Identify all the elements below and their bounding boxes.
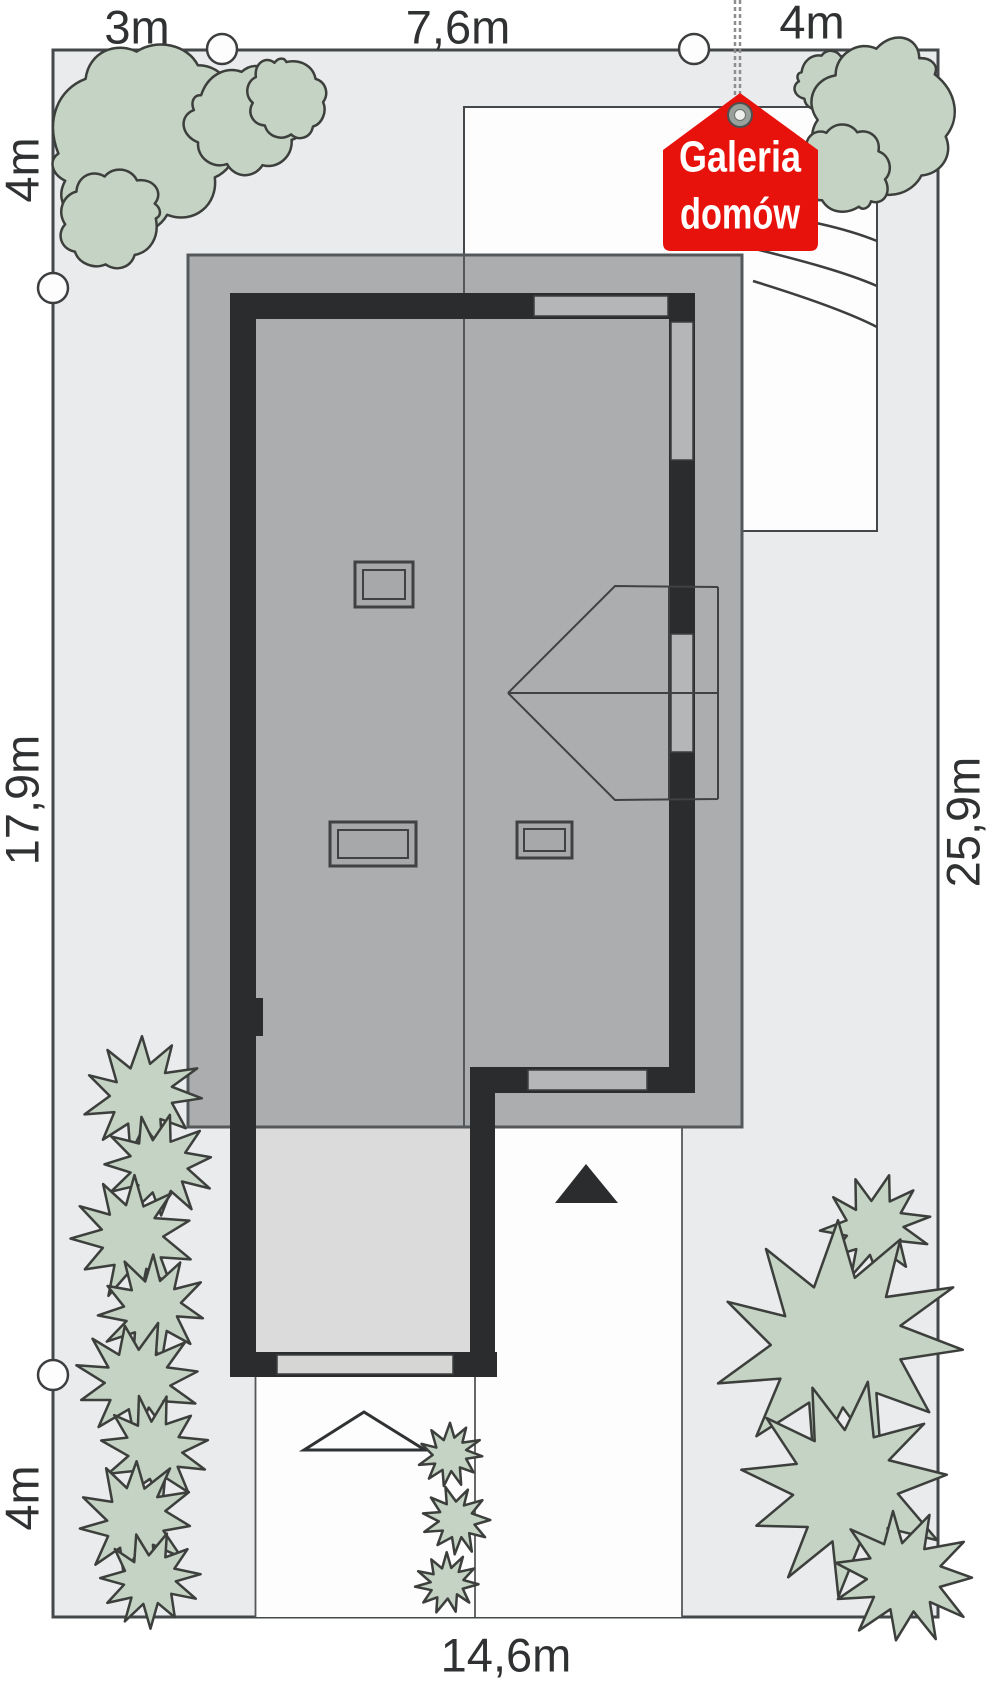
skylight (330, 822, 416, 866)
window-opening-east-upper (671, 322, 693, 460)
dimension-label-top-3: 4m (779, 0, 844, 49)
skylight (355, 562, 413, 607)
grommet-icon-hole (735, 110, 746, 121)
dimension-label-top-1: 3m (104, 1, 169, 54)
boundary-point (679, 34, 709, 64)
terrace (256, 1127, 470, 1352)
dimension-label-left-1: 4m (0, 137, 49, 202)
logo-line1: Galeria (679, 133, 801, 182)
dimension-label-left-2: 17,9m (0, 735, 49, 866)
gate-opening (277, 1355, 453, 1374)
boundary-point (38, 1360, 68, 1390)
dimension-label-top-2: 7,6m (406, 1, 511, 54)
logo-line2: domów (680, 190, 801, 239)
boundary-point (207, 34, 237, 64)
site-plan: Galeria domów 3m 7,6m 4m 4m 17,9m 4m 25,… (0, 0, 995, 1681)
boundary-point (38, 273, 68, 303)
window-opening-south (528, 1070, 647, 1090)
window-opening-north (534, 296, 668, 316)
skylight (517, 822, 572, 858)
dimension-label-right-1: 25,9m (937, 757, 990, 888)
dimension-label-bottom-1: 14,6m (441, 1629, 572, 1681)
dimension-label-left-3: 4m (0, 1465, 49, 1530)
